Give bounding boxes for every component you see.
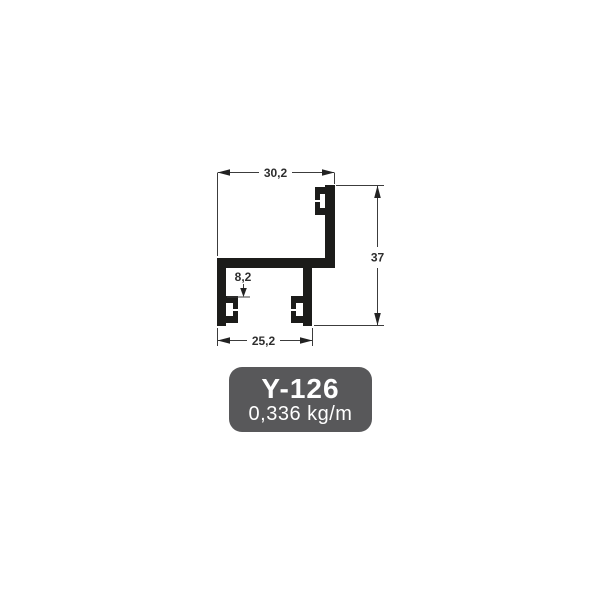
profile-cross-section (217, 185, 335, 326)
dim-label-notch: 8,2 (235, 270, 252, 284)
arrow-left-icon (218, 169, 231, 176)
profile-web (217, 258, 335, 268)
product-badge: Y-126 0,336 kg/m (229, 367, 372, 432)
arrow-down-icon (240, 288, 247, 297)
middle-slot-arm-lower (291, 316, 303, 323)
middle-slot-arm-upper (291, 296, 303, 303)
profile-technical-drawing: 30,2 37 25,2 8,2 (0, 0, 600, 600)
arrow-right-icon (322, 169, 335, 176)
dimension-bottom-width: 25,2 (218, 328, 313, 348)
left-slot-arm-lower (226, 316, 238, 323)
dim-label-height: 37 (371, 251, 385, 265)
middle-slot-lip-lower (291, 311, 296, 316)
dim-label-bottom-width: 25,2 (252, 334, 276, 348)
profile-right-wall (325, 185, 335, 268)
arrow-up-icon (374, 186, 381, 199)
product-code-label: Y-126 (261, 374, 339, 403)
top-slot-lip-upper (315, 194, 320, 200)
top-slot-arm-upper (315, 187, 325, 194)
top-slot-lip-lower (315, 202, 320, 208)
catalog-image: 30,2 37 25,2 8,2 (0, 0, 600, 600)
top-slot-arm-lower (315, 208, 325, 215)
profile-left-wall (217, 268, 226, 326)
dimension-height: 37 (314, 186, 384, 326)
arrow-down-icon (374, 313, 381, 326)
middle-slot-lip-upper (291, 303, 296, 309)
left-slot-lip-lower (233, 311, 238, 316)
arrow-left-icon (218, 337, 231, 344)
dim-label-top-width: 30,2 (264, 166, 288, 180)
product-weight-label: 0,336 kg/m (249, 403, 353, 425)
dimension-notch-height: 8,2 (227, 270, 252, 297)
profile-middle-wall (303, 268, 312, 326)
arrow-right-icon (300, 337, 313, 344)
left-slot-lip-upper (233, 303, 238, 309)
